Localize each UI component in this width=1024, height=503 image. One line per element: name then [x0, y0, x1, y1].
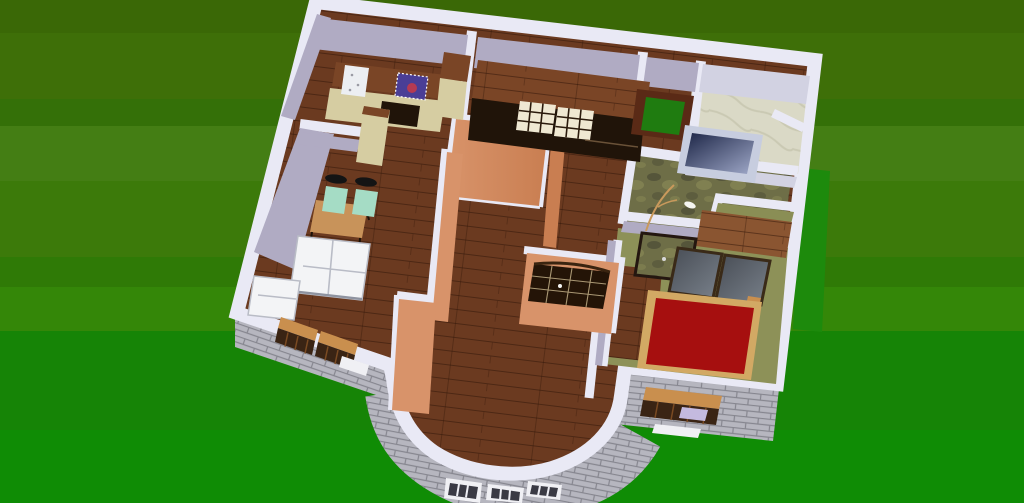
mint-chair [352, 189, 378, 217]
sink-speckle [349, 89, 352, 92]
tall-cabinet-side [436, 78, 467, 120]
burner [407, 83, 417, 93]
green-door [641, 97, 685, 135]
sink-speckle [351, 74, 354, 77]
glazed-double-door [528, 263, 610, 309]
drawer-faces [516, 101, 556, 134]
tall-cabinet-top [440, 52, 471, 82]
door-handle [558, 284, 562, 288]
drawer-grid-right [554, 107, 594, 140]
desk-handle [662, 257, 666, 261]
bathroom [677, 125, 763, 183]
kitchen-sink [341, 65, 369, 97]
3d-view-canvas[interactable] [0, 0, 1024, 503]
3d-home-view[interactable] [0, 0, 1024, 503]
drawer-grid-left [516, 101, 556, 134]
drawer-faces [554, 107, 594, 140]
bed-red-cover [646, 298, 754, 374]
hall-north-wall-face [643, 57, 699, 92]
living-west-salmon-face [392, 299, 436, 414]
glass-table-right [716, 255, 770, 305]
glass-table-left [669, 248, 722, 298]
living-west-wall-top [397, 295, 437, 300]
mint-chair [322, 186, 348, 214]
sink-speckle [357, 84, 360, 87]
